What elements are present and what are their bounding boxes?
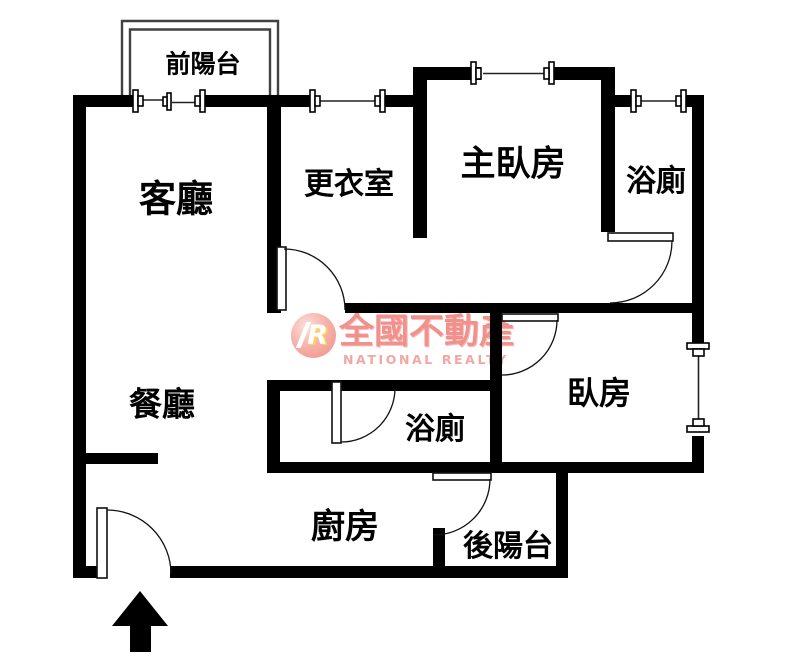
room-label-living-room: 客廳 — [139, 181, 213, 218]
room-label-bathroom-top: 浴廁 — [626, 167, 686, 197]
door-rear-balcony — [433, 473, 491, 535]
door-bathroom-middle — [332, 382, 395, 443]
room-label-bathroom-middle: 浴廁 — [405, 415, 465, 445]
room-label-kitchen: 廚房 — [311, 510, 379, 544]
floorplan-drawing — [0, 0, 795, 671]
window-closet — [310, 90, 385, 112]
entrance-arrow-icon — [112, 591, 168, 652]
window-living-room — [133, 90, 205, 112]
window-master-bedroom — [471, 62, 554, 84]
floorplan-canvas: R 全國不動產 NATIONAL REALTY — [0, 0, 795, 671]
door-closet — [277, 247, 345, 310]
door-bedroom — [502, 314, 558, 375]
room-label-bedroom: 臥房 — [567, 377, 631, 409]
door-bathroom-top — [608, 233, 673, 303]
room-label-front-balcony: 前陽台 — [165, 52, 240, 77]
interior-walls — [86, 67, 704, 578]
room-label-walk-in-closet: 更衣室 — [304, 170, 394, 200]
room-label-master-bedroom: 主臥房 — [460, 148, 565, 183]
window-bathroom-top — [631, 90, 686, 112]
door-entry — [97, 508, 171, 578]
room-label-rear-balcony: 後陽台 — [463, 532, 553, 562]
window-bedroom-right — [687, 343, 709, 432]
room-label-dining-room: 餐廳 — [129, 388, 195, 421]
